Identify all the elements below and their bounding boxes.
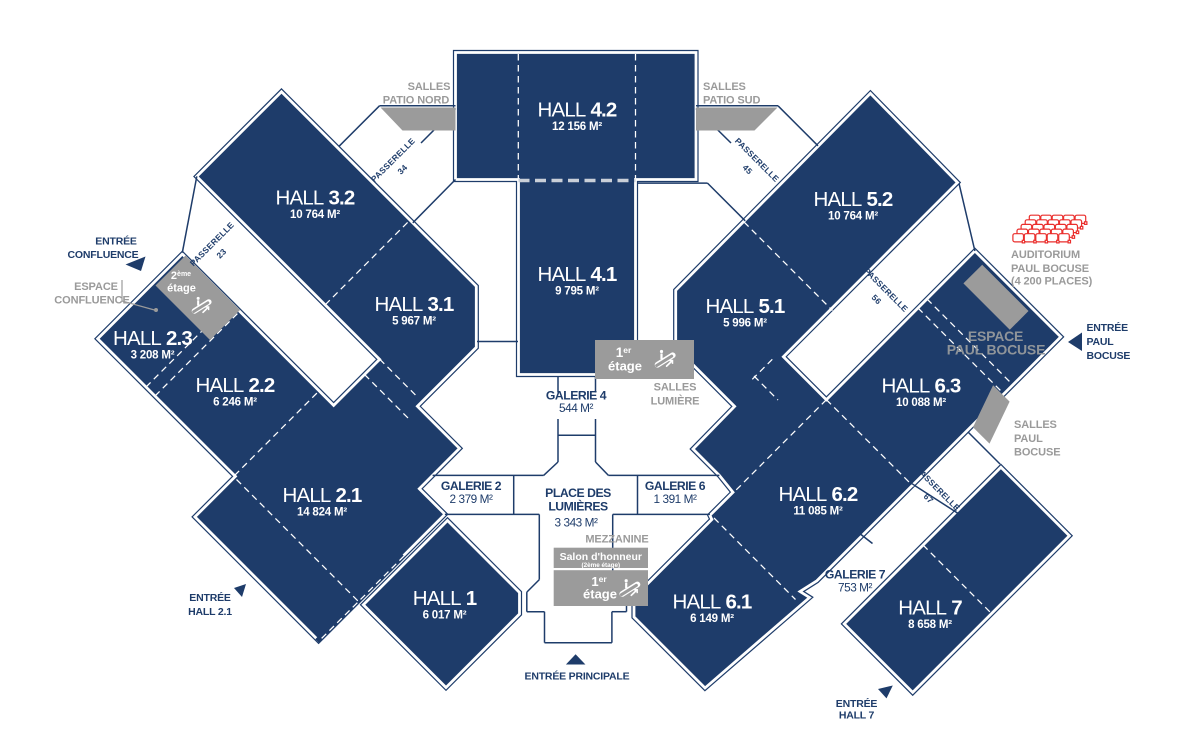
svg-text:8 658 M²: 8 658 M² bbox=[908, 619, 952, 631]
svg-text:HALL 1: HALL 1 bbox=[413, 587, 477, 610]
svg-text:PAUL BOCUSE: PAUL BOCUSE bbox=[947, 342, 1045, 358]
svg-text:3 208 M²: 3 208 M² bbox=[131, 350, 175, 362]
svg-text:HALL 3.1: HALL 3.1 bbox=[374, 293, 453, 316]
svg-text:SALLES: SALLES bbox=[654, 382, 697, 394]
svg-text:753 M²: 753 M² bbox=[838, 581, 873, 595]
svg-text:CONFLUENCE: CONFLUENCE bbox=[54, 295, 129, 307]
svg-text:HALL 2.2: HALL 2.2 bbox=[195, 374, 274, 397]
svg-text:6 149 M²: 6 149 M² bbox=[690, 613, 734, 625]
svg-text:étage: étage bbox=[167, 283, 196, 295]
svg-text:HALL 2.1: HALL 2.1 bbox=[188, 606, 232, 618]
svg-text:HALL 5.1: HALL 5.1 bbox=[705, 295, 784, 318]
svg-text:SALLES: SALLES bbox=[408, 81, 451, 93]
svg-text:HALL 7: HALL 7 bbox=[898, 597, 962, 620]
svg-text:GALERIE 6: GALERIE 6 bbox=[645, 479, 706, 493]
svg-text:HALL 5.2: HALL 5.2 bbox=[813, 188, 892, 211]
svg-text:PAUL: PAUL bbox=[1014, 433, 1043, 445]
svg-text:HALL 7: HALL 7 bbox=[839, 710, 875, 722]
svg-text:GALERIE 2: GALERIE 2 bbox=[441, 479, 502, 493]
svg-text:544 M²: 544 M² bbox=[559, 401, 594, 415]
svg-text:10 088 M²: 10 088 M² bbox=[896, 397, 946, 409]
svg-text:LUMIÈRE: LUMIÈRE bbox=[651, 395, 700, 408]
svg-text:HALL 6.1: HALL 6.1 bbox=[672, 591, 751, 614]
svg-text:10 764 M²: 10 764 M² bbox=[828, 211, 878, 223]
svg-text:(4 200 PLACES): (4 200 PLACES) bbox=[1011, 276, 1093, 288]
svg-text:HALL 4.1: HALL 4.1 bbox=[537, 263, 616, 286]
svg-text:HALL 6.3: HALL 6.3 bbox=[881, 375, 960, 398]
svg-text:BOCUSE: BOCUSE bbox=[1087, 350, 1131, 362]
svg-text:5 996 M²: 5 996 M² bbox=[723, 318, 767, 330]
svg-text:MEZZANINE: MEZZANINE bbox=[585, 534, 648, 546]
svg-text:CONFLUENCE: CONFLUENCE bbox=[68, 249, 139, 261]
svg-text:HALL 6.2: HALL 6.2 bbox=[778, 483, 857, 506]
svg-text:PATIO NORD: PATIO NORD bbox=[383, 95, 450, 107]
svg-text:1 391 M²: 1 391 M² bbox=[654, 492, 697, 506]
svg-text:AUDITORIUM: AUDITORIUM bbox=[1011, 249, 1080, 261]
svg-text:ENTRÉE PRINCIPALE: ENTRÉE PRINCIPALE bbox=[525, 670, 630, 683]
svg-text:GALERIE 7: GALERIE 7 bbox=[825, 568, 886, 582]
svg-text:6 246 M²: 6 246 M² bbox=[213, 397, 257, 409]
svg-text:HALL 4.2: HALL 4.2 bbox=[537, 99, 616, 122]
svg-text:HALL 3.2: HALL 3.2 bbox=[275, 187, 354, 210]
svg-text:2 379 M²: 2 379 M² bbox=[450, 492, 493, 506]
svg-text:ENTRÉE: ENTRÉE bbox=[95, 235, 137, 248]
svg-text:HALL 2.3: HALL 2.3 bbox=[113, 327, 192, 350]
svg-text:étage: étage bbox=[583, 587, 617, 602]
svg-text:10 764 M²: 10 764 M² bbox=[290, 209, 340, 221]
svg-text:ESPACE: ESPACE bbox=[74, 281, 118, 293]
svg-text:14 824 M²: 14 824 M² bbox=[297, 507, 347, 519]
svg-text:6 017 M²: 6 017 M² bbox=[423, 610, 467, 622]
svg-text:HALL 2.1: HALL 2.1 bbox=[282, 484, 361, 507]
svg-text:PATIO SUD: PATIO SUD bbox=[703, 95, 761, 107]
svg-text:11 085 M²: 11 085 M² bbox=[793, 506, 843, 518]
svg-text:PAUL: PAUL bbox=[1087, 336, 1115, 348]
svg-text:SALLES: SALLES bbox=[703, 81, 746, 93]
svg-text:BOCUSE: BOCUSE bbox=[1014, 447, 1060, 459]
svg-text:12 156 M²: 12 156 M² bbox=[552, 121, 602, 133]
svg-text:PAUL BOCUSE: PAUL BOCUSE bbox=[1011, 263, 1089, 275]
svg-text:ENTRÉE: ENTRÉE bbox=[189, 591, 231, 604]
svg-text:PLACE DES: PLACE DES bbox=[545, 486, 611, 500]
svg-text:étage: étage bbox=[608, 359, 642, 374]
svg-text:3 343 M²: 3 343 M² bbox=[555, 516, 598, 530]
svg-text:5 967 M²: 5 967 M² bbox=[392, 316, 436, 328]
svg-text:SALLES: SALLES bbox=[1014, 419, 1057, 431]
svg-text:LUMIÈRES: LUMIÈRES bbox=[548, 499, 608, 514]
svg-text:(2ème étage): (2ème étage) bbox=[582, 562, 621, 569]
svg-text:ENTRÉE: ENTRÉE bbox=[836, 697, 878, 710]
svg-text:9 795 M²: 9 795 M² bbox=[555, 286, 599, 298]
svg-text:ENTRÉE: ENTRÉE bbox=[1087, 321, 1129, 334]
